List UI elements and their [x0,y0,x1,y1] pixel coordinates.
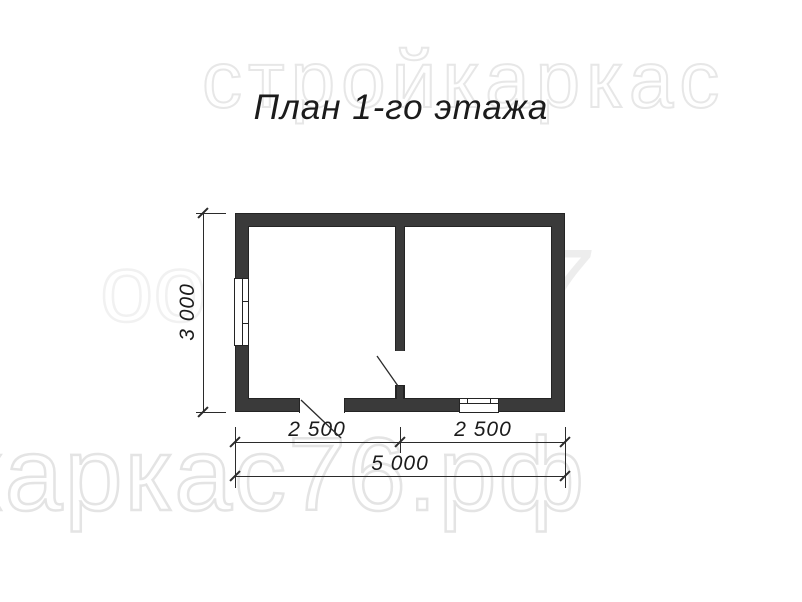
window-frame-line [490,399,491,403]
dimension-label-height: 3 000 [176,264,200,360]
window-frame-line [242,323,249,324]
dimension-label-bottom-total: 5 000 [350,452,450,476]
window-frame-line [460,403,498,404]
bottom-wall-window [459,398,499,413]
interior-doorway-opening [395,351,405,385]
window-frame-line [242,279,243,345]
dimension-line-vertical [203,213,204,412]
dimension-line-bottom-total [235,476,565,477]
room-left [248,226,396,399]
entrance-door-opening [299,398,345,413]
dimension-extension-line [235,427,236,488]
floor-plan: 3 000 2 500 2 500 5 000 [0,0,802,602]
dimension-extension-line [565,427,566,488]
left-wall-window [234,278,249,346]
window-frame-line [467,399,468,403]
interior-door-jamb-stub [396,385,404,399]
floorplan-page: стройкаркас оо 7 каркас76.рф План 1-го э… [0,0,802,602]
window-frame-line [242,301,249,302]
dimension-label-bottom-right: 2 500 [433,418,533,442]
dimension-label-bottom-left: 2 500 [267,418,367,442]
room-right [404,226,552,399]
